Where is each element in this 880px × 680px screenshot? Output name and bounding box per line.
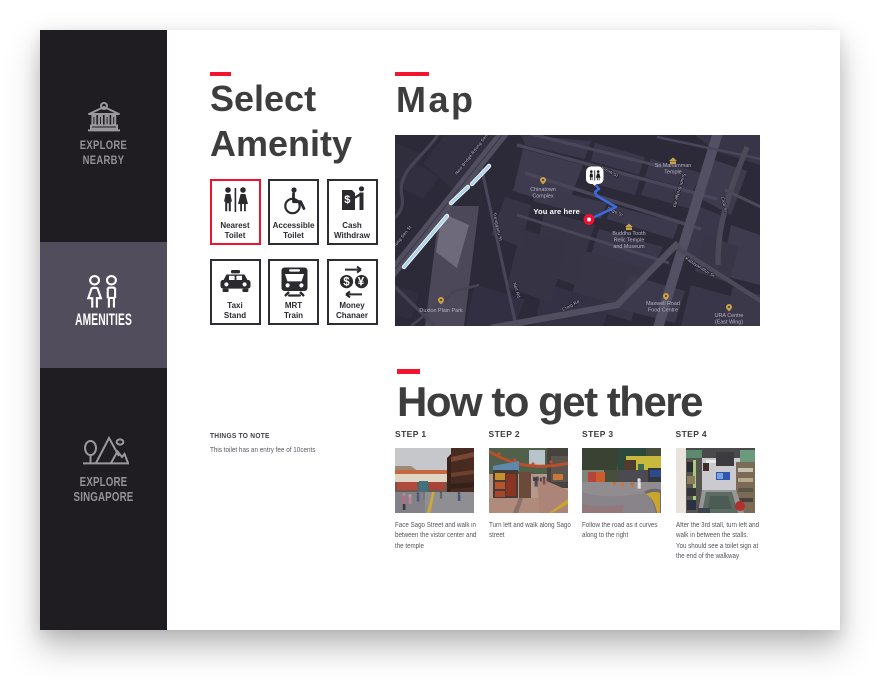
svg-text:$: $ [343, 277, 350, 289]
svg-text:Maxwell Road: Maxwell Road [646, 301, 680, 307]
svg-text:(East Wing): (East Wing) [715, 320, 743, 326]
svg-text:Relic Temple: Relic Temple [614, 238, 645, 244]
svg-text:Complex: Complex [532, 194, 554, 200]
svg-text:$: $ [344, 194, 350, 206]
svg-text:Chinatown: Chinatown [530, 187, 555, 193]
svg-text:Food Centre: Food Centre [648, 308, 678, 314]
svg-text:URA Centre: URA Centre [715, 313, 744, 319]
svg-text:¥: ¥ [357, 277, 364, 289]
svg-text:Buddha Tooth: Buddha Tooth [612, 231, 645, 237]
svg-text:Duxton Plain Park: Duxton Plain Park [419, 308, 462, 314]
svg-text:You are here: You are here [533, 207, 580, 216]
svg-text:and Museum: and Museum [613, 244, 645, 250]
svg-text:Temple: Temple [664, 170, 681, 176]
